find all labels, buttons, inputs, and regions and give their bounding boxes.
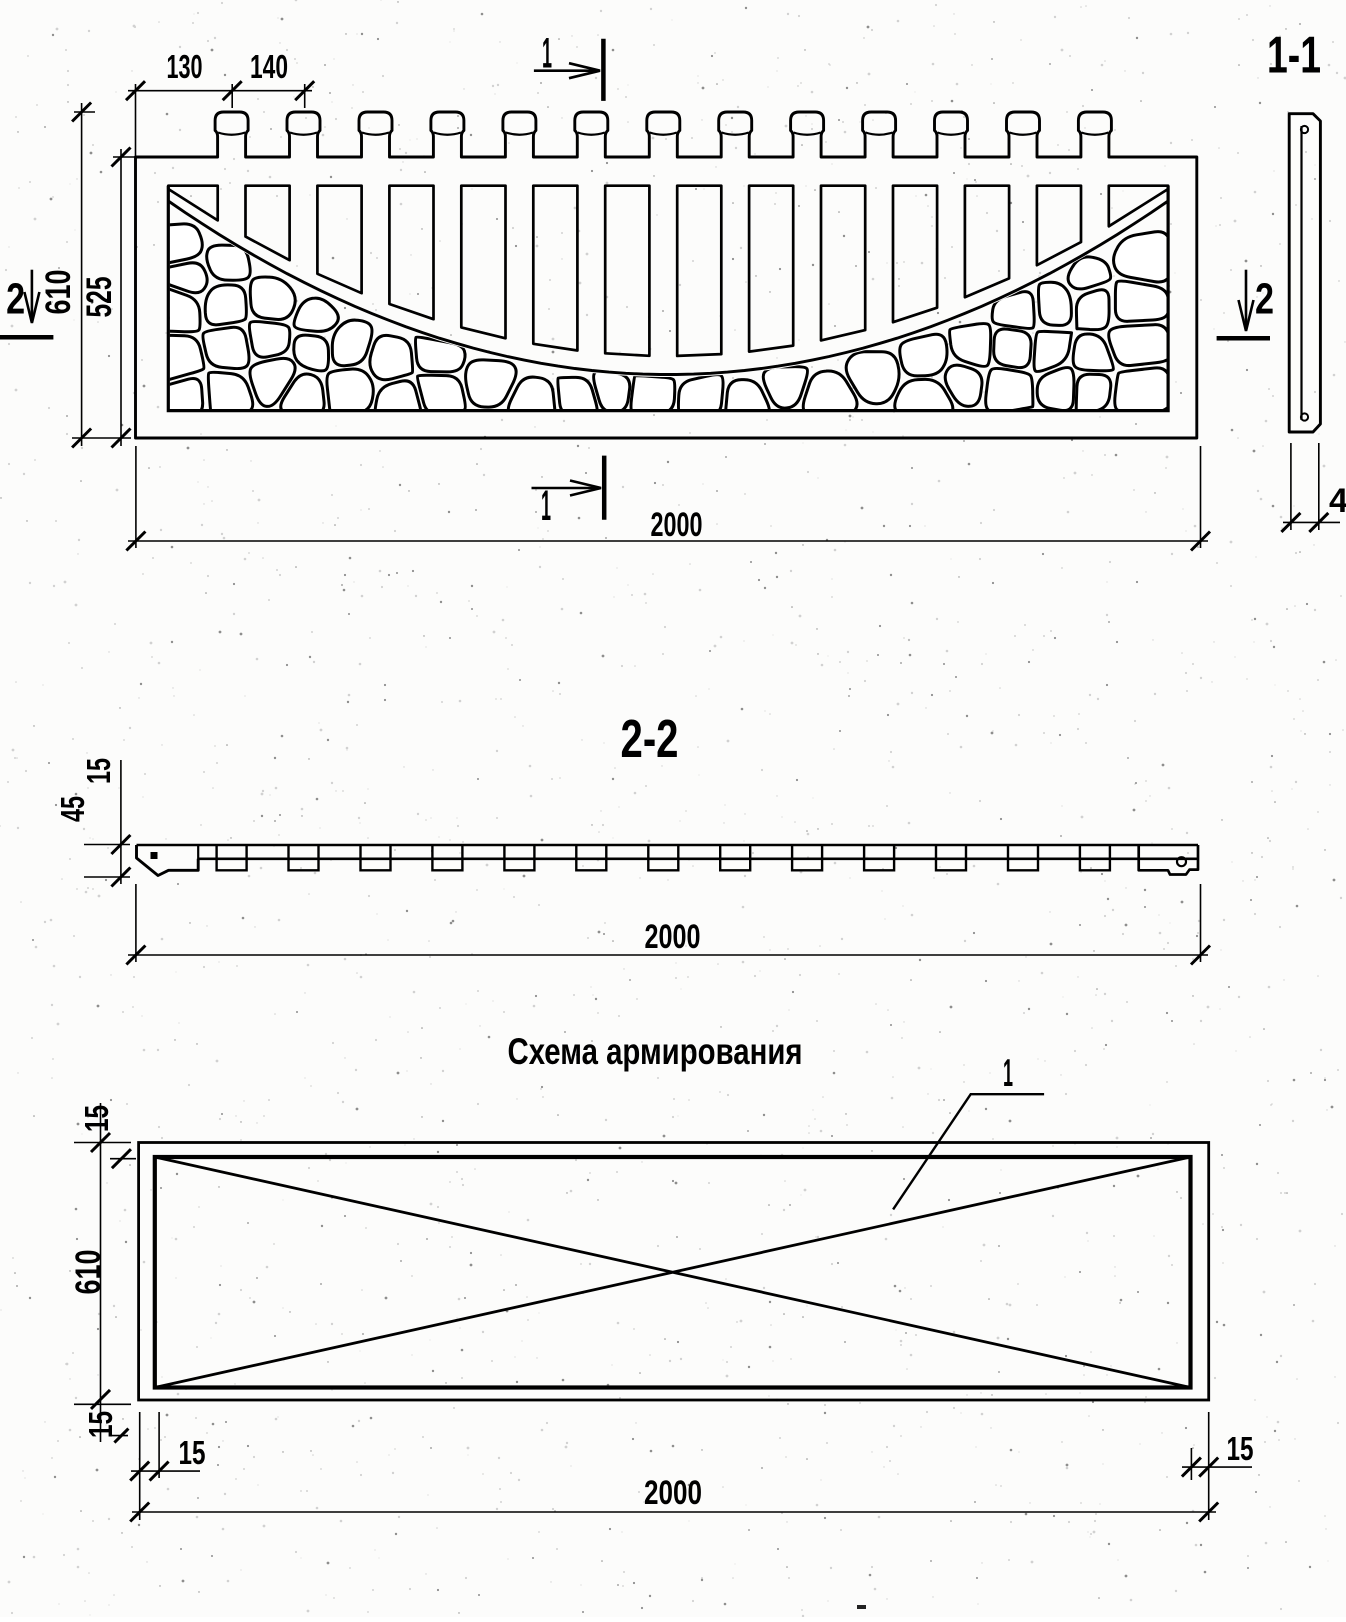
svg-text:2000: 2000 [644,1474,702,1512]
svg-text:140: 140 [250,48,288,85]
svg-text:15: 15 [1227,1430,1254,1467]
svg-text:15: 15 [179,1434,206,1471]
svg-text:2-2: 2-2 [621,709,679,769]
svg-text:2000: 2000 [651,506,703,544]
svg-text:2000: 2000 [645,918,701,956]
svg-text:130: 130 [167,48,203,85]
svg-text:1: 1 [542,29,552,77]
svg-text:1: 1 [541,482,551,530]
svg-text:15: 15 [80,758,117,784]
svg-text:15: 15 [78,1105,115,1132]
svg-text:2: 2 [1255,275,1274,324]
svg-text:1: 1 [1003,1052,1013,1095]
svg-text:610: 610 [69,1250,108,1295]
svg-text:Схема армирования: Схема армирования [508,1031,803,1072]
svg-text:525: 525 [80,277,119,318]
svg-text:610: 610 [39,270,78,315]
svg-text:45: 45 [54,796,91,822]
svg-text:2: 2 [6,275,25,324]
svg-text:1-1: 1-1 [1267,27,1321,85]
svg-text:45: 45 [1329,482,1346,520]
svg-text:15: 15 [82,1411,119,1438]
